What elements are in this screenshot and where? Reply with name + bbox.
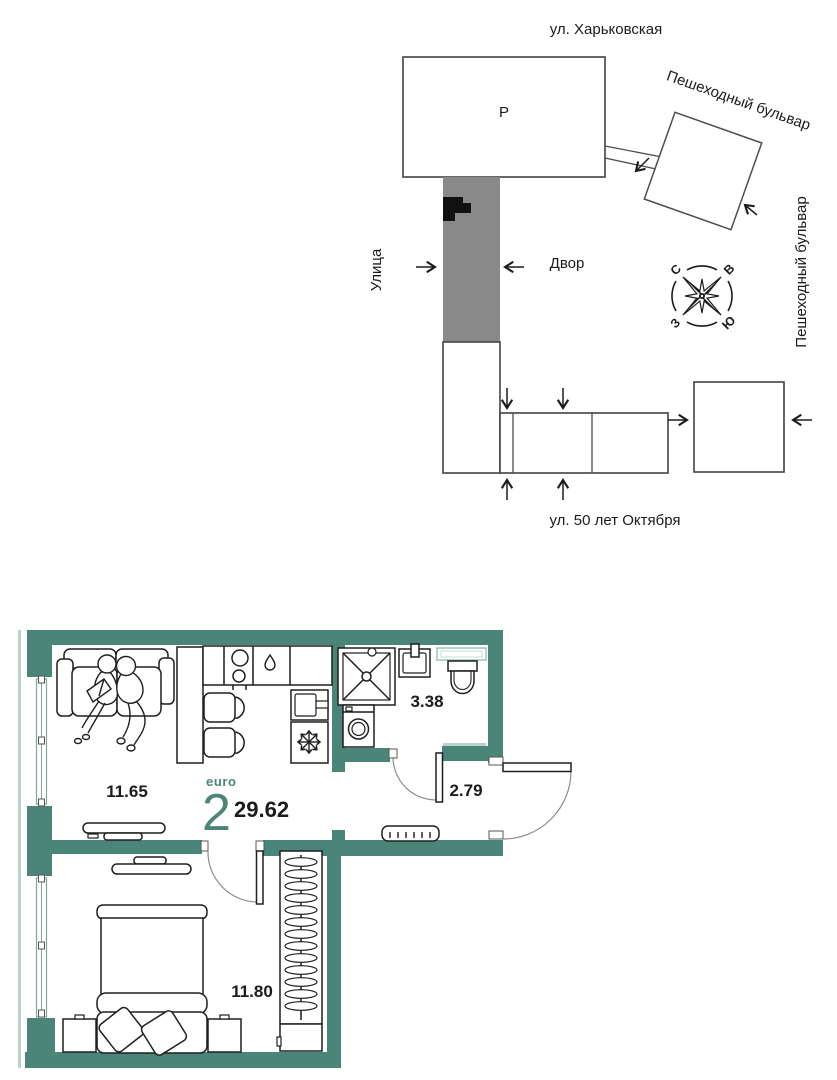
snowflake-icon [298, 731, 320, 753]
apartment-plan: 11.65 euro 2 29.62 [18, 630, 571, 1068]
pedestrian-square-building [644, 112, 761, 229]
kitchen-table [177, 647, 203, 763]
parking-label: Р [499, 104, 509, 121]
compass: С В Ю З [641, 235, 764, 358]
washing-machine [343, 705, 374, 747]
floorplan-page: ул. Харьковская ул. 50 лет Октября Пешех… [0, 0, 837, 1080]
building-strip-lower [443, 342, 500, 473]
passage-lines [605, 146, 662, 169]
bathroom-door [389, 749, 443, 802]
total-area-label: 29.62 [234, 797, 289, 822]
entrance-door [489, 757, 571, 839]
courtyard-label: Двор [550, 255, 585, 272]
bathroom-area-label: 3.38 [410, 692, 443, 711]
hallway-bench [382, 826, 439, 841]
bedroom-window [37, 875, 47, 1017]
compass-north-label: С [668, 262, 684, 278]
dining-chairs [204, 693, 244, 757]
building-bar [500, 413, 668, 473]
facade-line [18, 630, 21, 1068]
boulevard-right-label: Пешеходный бульвар [793, 196, 810, 347]
bathroom-mirror [437, 648, 486, 660]
compass-east-label: В [721, 261, 737, 277]
fridge [291, 722, 328, 763]
tv-bedroom [112, 857, 191, 874]
compass-west-label: З [668, 315, 684, 331]
east-square-building [694, 382, 784, 472]
plan-svg: ул. Харьковская ул. 50 лет Октября Пешех… [0, 0, 837, 1080]
wardrobe [277, 851, 322, 1051]
street-left-label: Улица [368, 248, 385, 291]
bathroom-sink [399, 644, 430, 677]
bedroom-door [201, 841, 264, 904]
kitchen-counter [203, 646, 332, 685]
street-bottom-label: ул. 50 лет Октября [549, 512, 680, 529]
kitchen-sink-cabinet [291, 690, 328, 720]
compass-south-label: Ю [719, 313, 738, 332]
bed [97, 905, 207, 1057]
tv-living [83, 823, 165, 840]
site-plan: ул. Харьковская ул. 50 лет Октября Пешех… [368, 21, 813, 529]
nightstand-left [63, 1015, 96, 1052]
bedroom-area-label: 11.80 [231, 982, 273, 1001]
shower [338, 648, 395, 705]
hallway-area-label: 2.79 [449, 781, 482, 800]
toilet [448, 661, 477, 694]
street-top-label: ул. Харьковская [550, 21, 663, 38]
rooms-count-label: 2 [202, 784, 231, 842]
living-window [37, 676, 47, 806]
nightstand-right [208, 1015, 241, 1052]
living-area-label: 11.65 [106, 782, 148, 801]
